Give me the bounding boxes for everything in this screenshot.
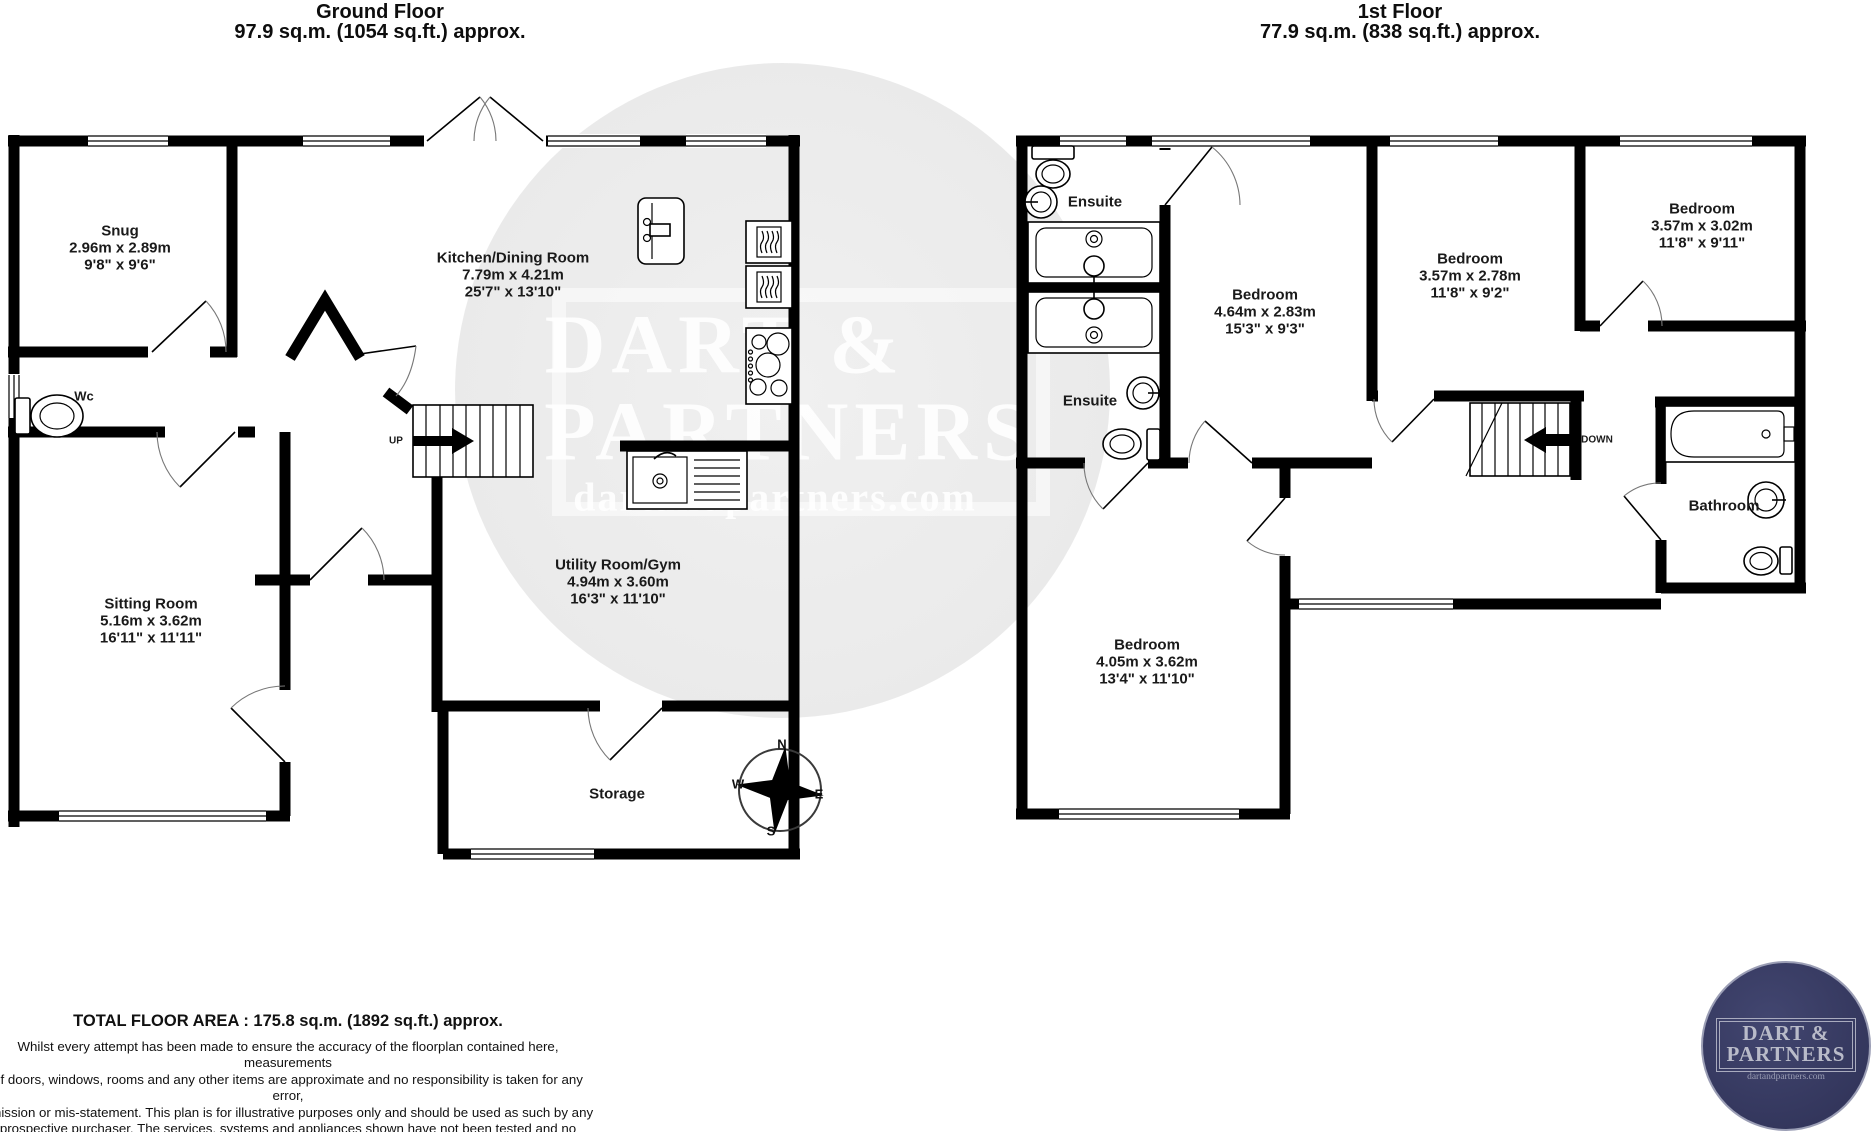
shower-tray-icon [1028, 287, 1160, 353]
compass-north-label: N [777, 737, 786, 752]
logo-line1: DART & [1720, 1023, 1852, 1044]
first-floor-title: 1st Floor 77.9 sq.m. (838 sq.ft.) approx… [1260, 2, 1540, 42]
compass-west-label: W [732, 777, 744, 792]
room-label-wc: Wc [74, 388, 94, 405]
ensuite-mid-sink-icon [1127, 377, 1160, 409]
ensuite-top-toilet-icon [1032, 146, 1074, 188]
total-floor-area: TOTAL FLOOR AREA : 175.8 sq.m. (1892 sq.… [0, 1012, 598, 1031]
ground-floor-title: Ground Floor 97.9 sq.m. (1054 sq.ft.) ap… [234, 2, 525, 42]
floorplan-drawing [0, 0, 1873, 1132]
room-label-bedroom4: Bedroom 4.05m x 3.62m 13'4" x 11'10" [1096, 637, 1198, 688]
dart-partners-logo: DART & PARTNERS dartandpartners.com [1701, 961, 1871, 1131]
staircase-down [1466, 403, 1575, 476]
room-label-bedroom3: Bedroom 3.57m x 3.02m 11'8" x 9'11" [1651, 201, 1753, 252]
bathtub-icon [1665, 406, 1795, 462]
ensuite-top-sink-icon [1025, 186, 1057, 218]
room-label-utility: Utility Room/Gym 4.94m x 3.60m 16'3" x 1… [555, 557, 681, 608]
ground-floor-name: Ground Floor [234, 2, 525, 22]
room-label-bathroom: Bathroom [1689, 498, 1760, 515]
room-label-ensuite-top: Ensuite [1068, 194, 1122, 211]
room-label-snug: Snug 2.96m x 2.89m 9'8" x 9'6" [69, 223, 171, 274]
stairs-down-label: DOWN [1581, 432, 1613, 449]
disclaimer-line: Whilst every attempt has been made to en… [0, 1039, 598, 1072]
floorplan-page: DART & PARTNERS dartandpartners.com [0, 0, 1873, 1132]
first-floor-name: 1st Floor [1260, 2, 1540, 22]
first-floor-area: 77.9 sq.m. (838 sq.ft.) approx. [1260, 22, 1540, 42]
logo-url: dartandpartners.com [1747, 1072, 1825, 1082]
logo-box: DART & PARTNERS [1716, 1018, 1856, 1072]
ground-floor-area: 97.9 sq.m. (1054 sq.ft.) approx. [234, 22, 525, 42]
kitchen-sink-icon [627, 451, 747, 509]
disclaimer-line: prospective purchaser. The services, sys… [0, 1121, 598, 1132]
footer-text-block: TOTAL FLOOR AREA : 175.8 sq.m. (1892 sq.… [0, 1012, 598, 1132]
room-label-storage: Storage [589, 786, 645, 803]
bathroom-toilet-icon [1744, 547, 1792, 575]
disclaimer-line: of doors, windows, rooms and any other i… [0, 1072, 598, 1105]
room-label-bedroom2: Bedroom 3.57m x 2.78m 11'8" x 9'2" [1419, 251, 1521, 302]
stairs-up-label: UP [389, 433, 403, 450]
compass-south-label: S [767, 824, 776, 839]
room-label-bedroom1: Bedroom 4.64m x 2.83m 15'3" x 9'3" [1214, 287, 1316, 338]
staircase-up [413, 405, 533, 477]
hob-icon [746, 328, 792, 404]
fridge-icon [638, 198, 684, 264]
ensuite-mid-toilet-icon [1103, 429, 1160, 460]
room-label-kitchen: Kitchen/Dining Room 7.79m x 4.21m 25'7" … [437, 250, 590, 301]
room-label-sitting: Sitting Room 5.16m x 3.62m 16'11" x 11'1… [100, 596, 202, 647]
disclaimer-line: omission or mis-statement. This plan is … [0, 1105, 598, 1121]
room-label-ensuite-mid: Ensuite [1063, 393, 1117, 410]
wc-toilet-icon [15, 395, 83, 437]
shower-tray-icon [1028, 222, 1160, 288]
ground-floor-plan [7, 97, 800, 861]
logo-line2: PARTNERS [1720, 1044, 1852, 1065]
oven-icon [746, 266, 792, 308]
oven-icon [746, 221, 792, 263]
compass-east-label: E [815, 787, 824, 802]
